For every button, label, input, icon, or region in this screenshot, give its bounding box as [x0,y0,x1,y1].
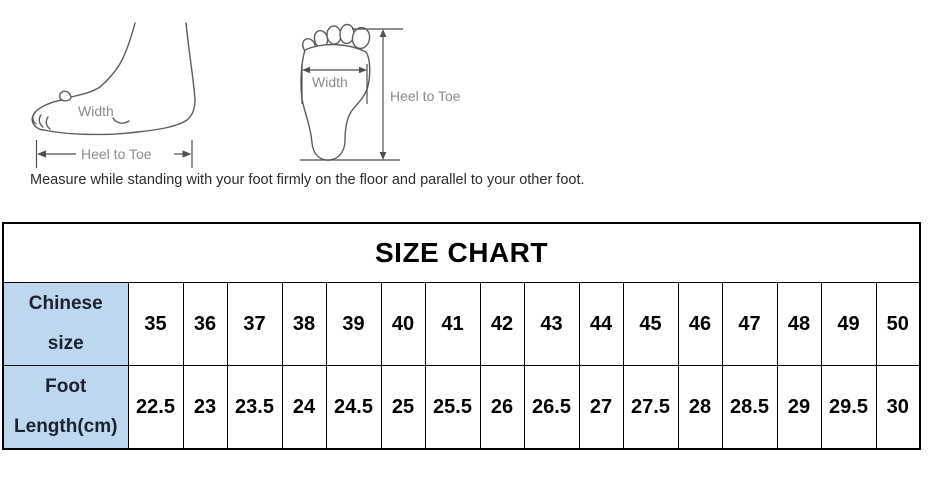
length-cell: 29.5 [821,366,876,450]
length-cell: 26 [480,366,524,450]
toe-curl-3 [46,117,50,129]
size-cell: 49 [821,283,876,366]
size-cell: 39 [326,283,381,366]
arrowhead-left-icon [37,150,46,157]
size-cell: 38 [282,283,326,366]
header-line-2: Length(cm) [4,407,128,447]
length-cell: 29 [777,366,821,450]
measure-instruction-note: Measure while standing with your foot fi… [30,172,585,188]
size-cell: 42 [480,283,524,366]
length-cell: 27.5 [623,366,678,450]
size-cell: 50 [876,283,920,366]
row-header-foot-length: Foot Length(cm) [3,366,128,450]
size-cell: 35 [128,283,183,366]
toe-curl-2 [39,115,43,127]
arrowhead-up-icon [380,29,387,37]
length-cell: 30 [876,366,920,450]
size-chart-title: SIZE CHART [3,223,920,283]
toe-knuckle-line [60,91,71,101]
ball-arc [113,118,129,123]
length-cell: 25 [381,366,425,450]
bottom-heel-to-toe-label: Heel to Toe [390,88,461,104]
size-cell: 47 [722,283,777,366]
heel-leg-outline [186,23,195,120]
row-header-chinese-size: Chinese size [3,283,128,366]
size-cell: 43 [524,283,579,366]
size-cell: 48 [777,283,821,366]
length-cell: 23.5 [227,366,282,450]
bottom-view-foot-diagram: Width Heel to Toe [290,8,480,170]
header-line-1: Foot [4,367,128,407]
header-line-1: Chinese [4,284,128,324]
size-cell: 41 [425,283,480,366]
size-chart-table: SIZE CHART Chinese size 35 36 37 38 39 4… [2,222,921,450]
sole-print-outline [301,45,370,161]
bottom-width-label: Width [312,74,348,90]
foot-outline [71,23,135,97]
size-chart-page: { "measurement_guide": { "side_view": { … [0,0,950,480]
side-view-foot-diagram: Width Heel to Toe [25,8,225,173]
size-cell: 45 [623,283,678,366]
size-cell: 44 [579,283,623,366]
length-cell: 23 [183,366,227,450]
size-cell: 40 [381,283,425,366]
length-cell: 22.5 [128,366,183,450]
size-cell: 36 [183,283,227,366]
length-cell: 25.5 [425,366,480,450]
length-cell: 28.5 [722,366,777,450]
length-cell: 28 [678,366,722,450]
side-heel-to-toe-label: Heel to Toe [81,146,152,162]
length-cell: 27 [579,366,623,450]
arrowhead-right-icon [183,150,192,157]
length-cell: 24 [282,366,326,450]
length-cell: 24.5 [326,366,381,450]
header-line-2: size [4,324,128,364]
arrowhead-down-icon [380,152,387,160]
side-width-label: Width [78,103,114,119]
chinese-size-row: Chinese size 35 36 37 38 39 40 41 42 43 … [3,283,920,366]
sole-outline [44,120,187,134]
size-cell: 46 [678,283,722,366]
title-row: SIZE CHART [3,223,920,283]
foot-length-row: Foot Length(cm) 22.5 23 23.5 24 24.5 25 … [3,366,920,450]
size-cell: 37 [227,283,282,366]
length-cell: 26.5 [524,366,579,450]
